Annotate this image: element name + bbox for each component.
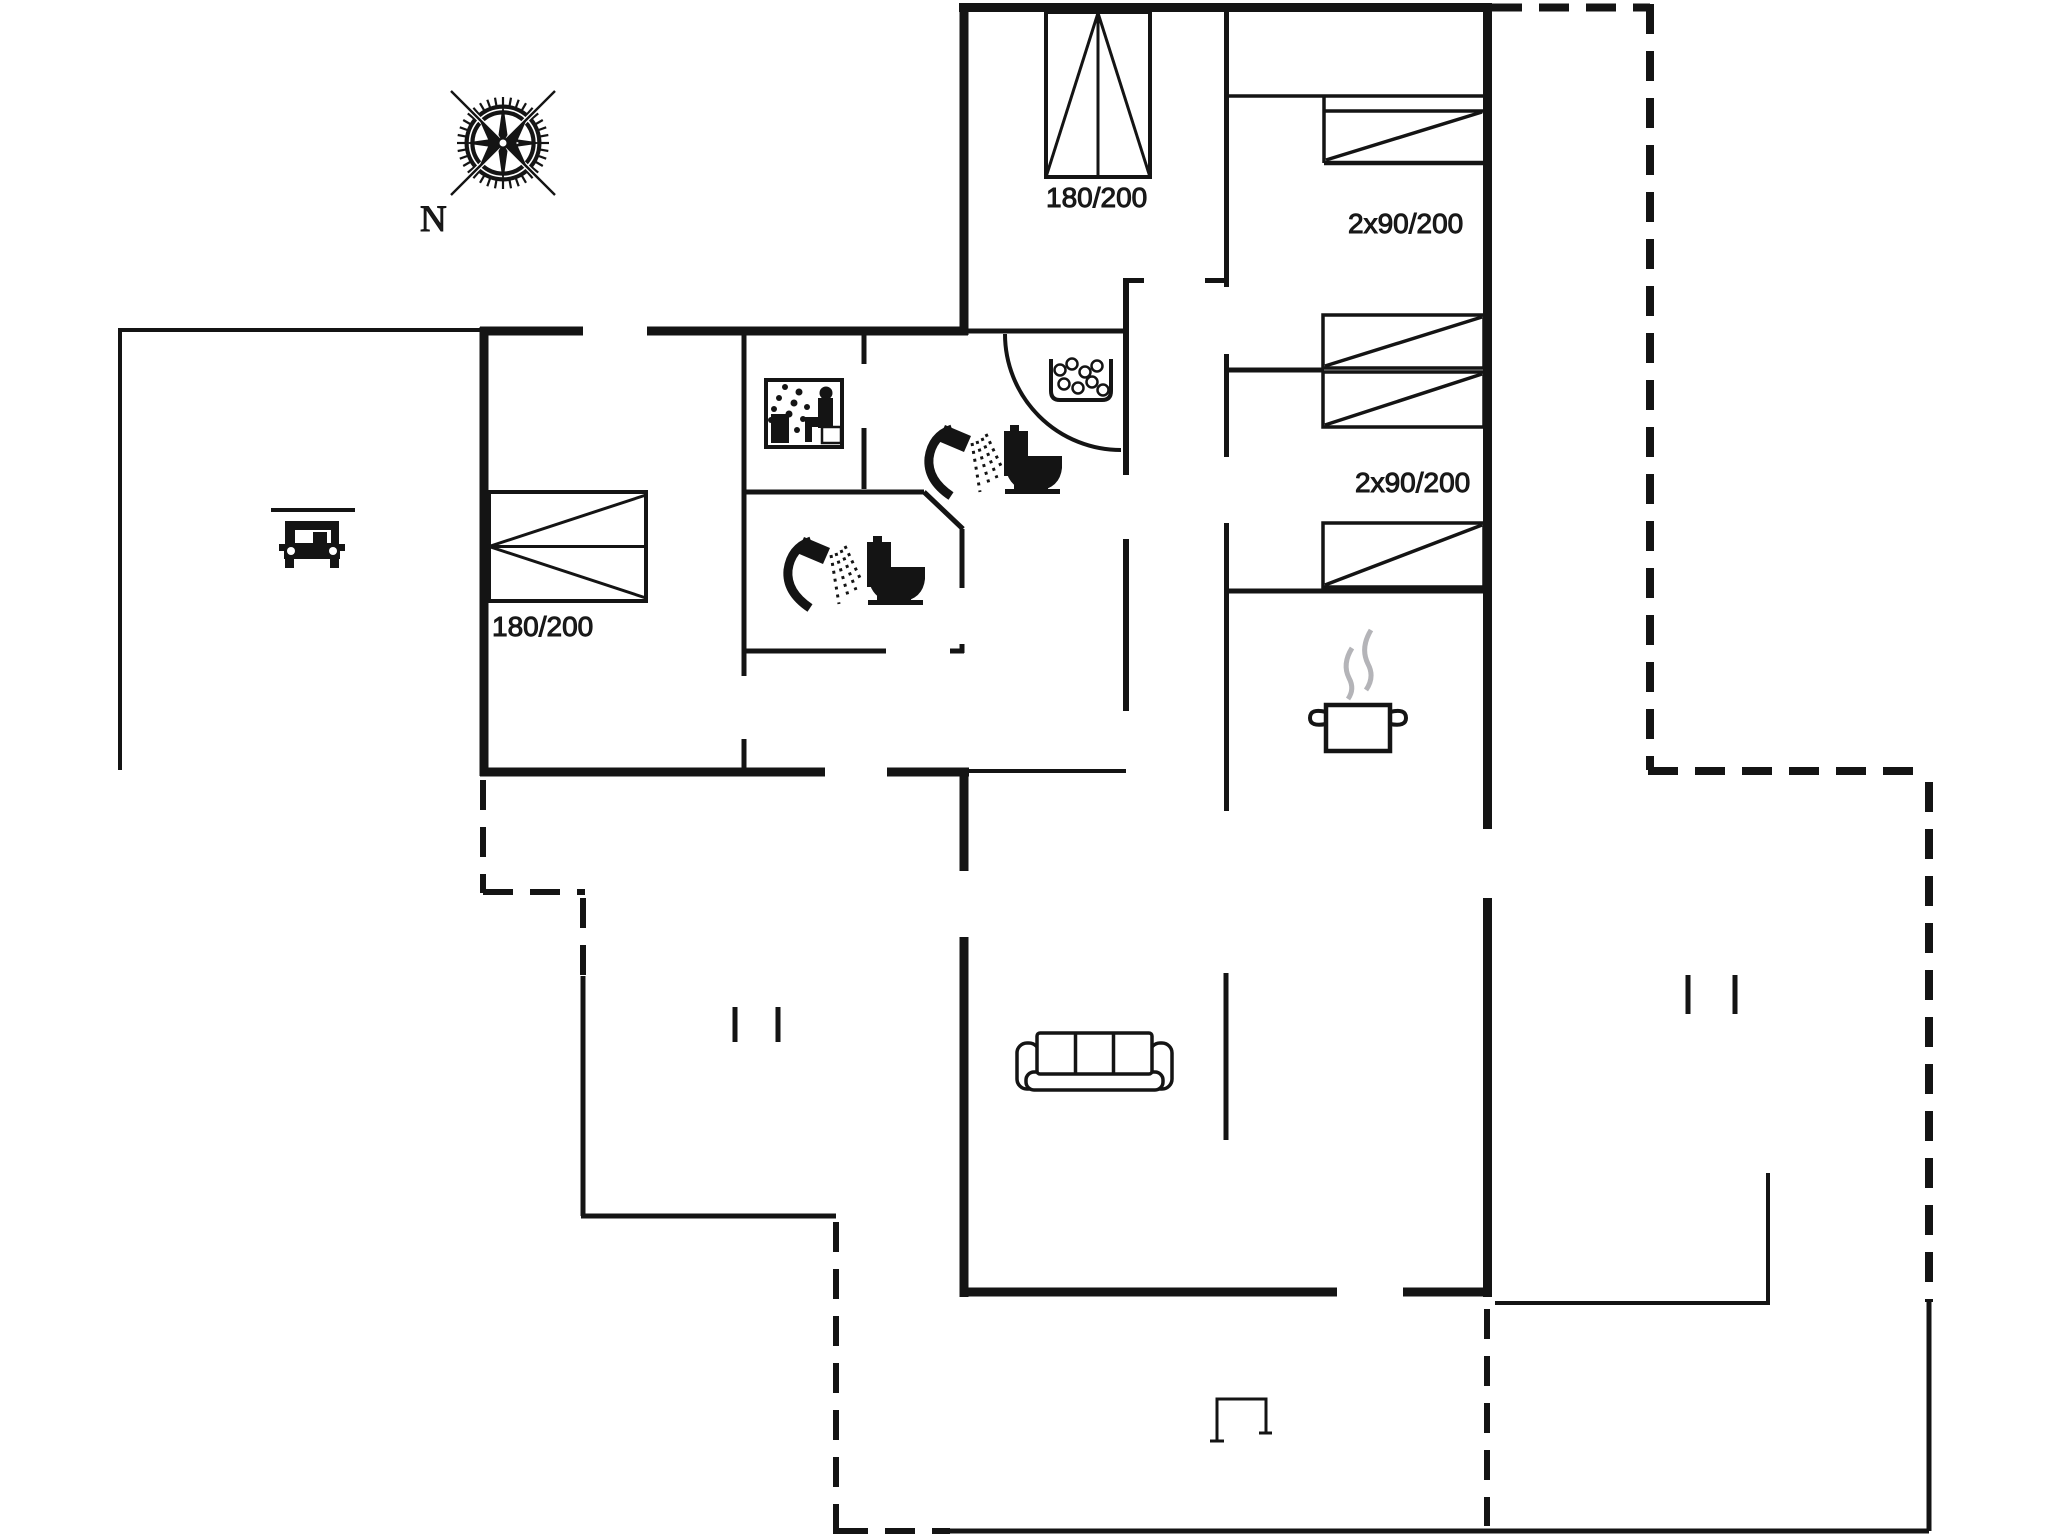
svg-text:2x90/200: 2x90/200	[1355, 467, 1470, 498]
svg-text:N: N	[420, 199, 447, 240]
svg-text:180/200: 180/200	[1046, 182, 1147, 213]
svg-text:2x90/200: 2x90/200	[1348, 208, 1463, 239]
svg-text:180/200: 180/200	[492, 611, 593, 642]
